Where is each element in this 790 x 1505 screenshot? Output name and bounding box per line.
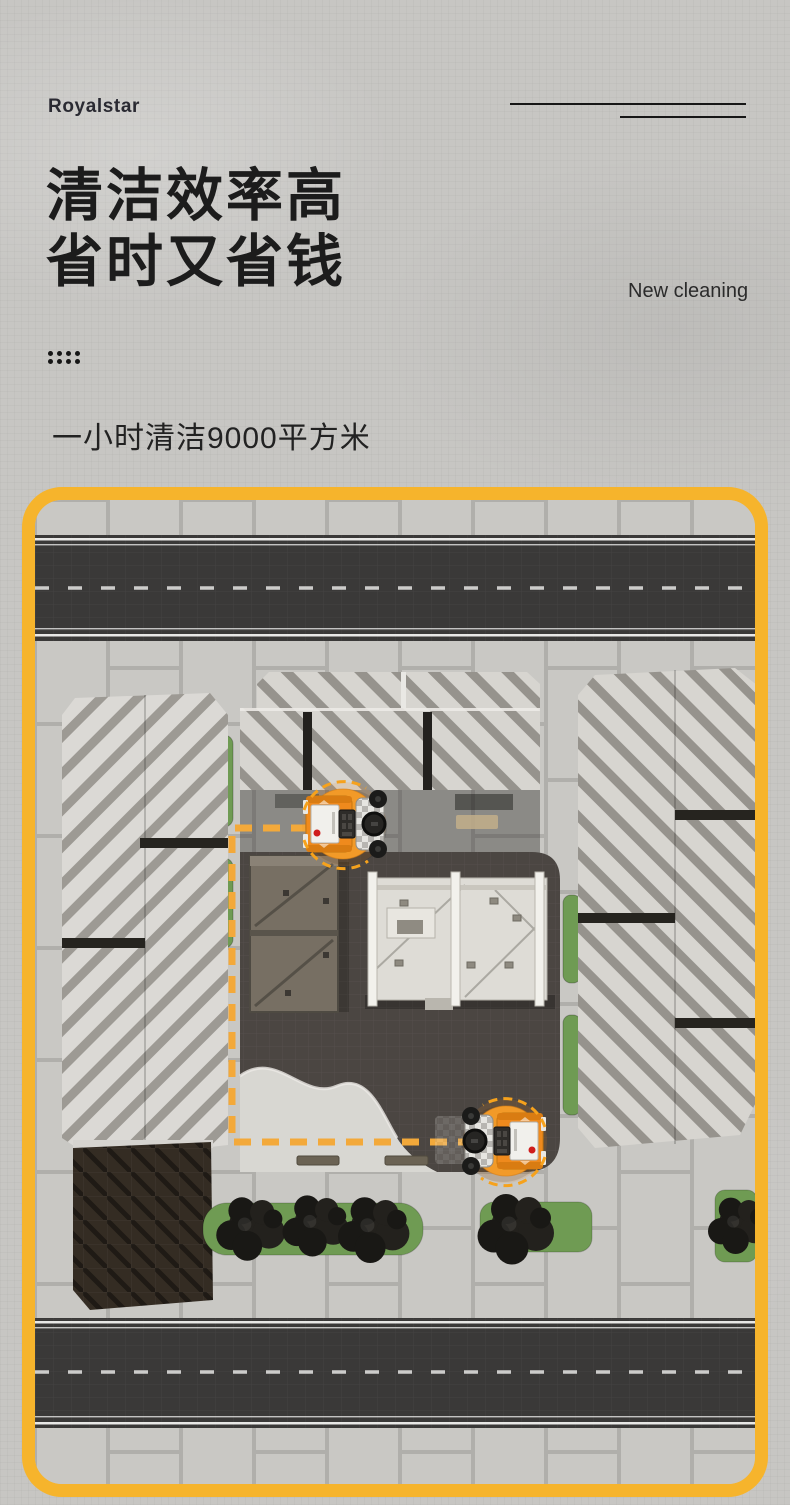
dot xyxy=(48,351,53,356)
page-title: 清洁效率高 省时又省钱 xyxy=(46,163,346,295)
dot xyxy=(75,351,80,356)
road-bottom xyxy=(35,1318,755,1428)
dot xyxy=(48,359,53,364)
dot xyxy=(75,359,80,364)
dot xyxy=(57,351,62,356)
road-top xyxy=(35,535,755,641)
aerial-scene-illustration xyxy=(35,500,755,1484)
building-right xyxy=(578,668,755,1148)
dot xyxy=(57,359,62,364)
tagline-new-cleaning: New cleaning xyxy=(628,280,748,303)
title-line-1: 清洁效率高 xyxy=(46,163,346,229)
header-rule-long xyxy=(510,103,746,105)
building-top xyxy=(240,672,540,790)
dots-ornament xyxy=(48,351,80,364)
pavilion-structure xyxy=(365,872,555,1010)
dot xyxy=(66,359,71,364)
sweeper-machine-1 xyxy=(302,782,387,869)
hero-subtitle: 一小时清洁9000平方米 xyxy=(52,413,371,457)
header-rule-short xyxy=(620,116,746,118)
page-root: { "brand": { "logo": "Royalstar" }, "her… xyxy=(0,0,790,1505)
brand-logo: Royalstar xyxy=(48,96,140,118)
kiosk-structure xyxy=(250,856,349,1012)
dot xyxy=(66,351,71,356)
building-left xyxy=(62,693,228,1310)
sweeper-machine-2 xyxy=(462,1099,547,1186)
title-line-2: 省时又省钱 xyxy=(46,229,346,295)
building-left-dark-wing xyxy=(73,1142,213,1310)
pavement-mat xyxy=(456,815,498,829)
illustration-frame xyxy=(22,487,768,1497)
